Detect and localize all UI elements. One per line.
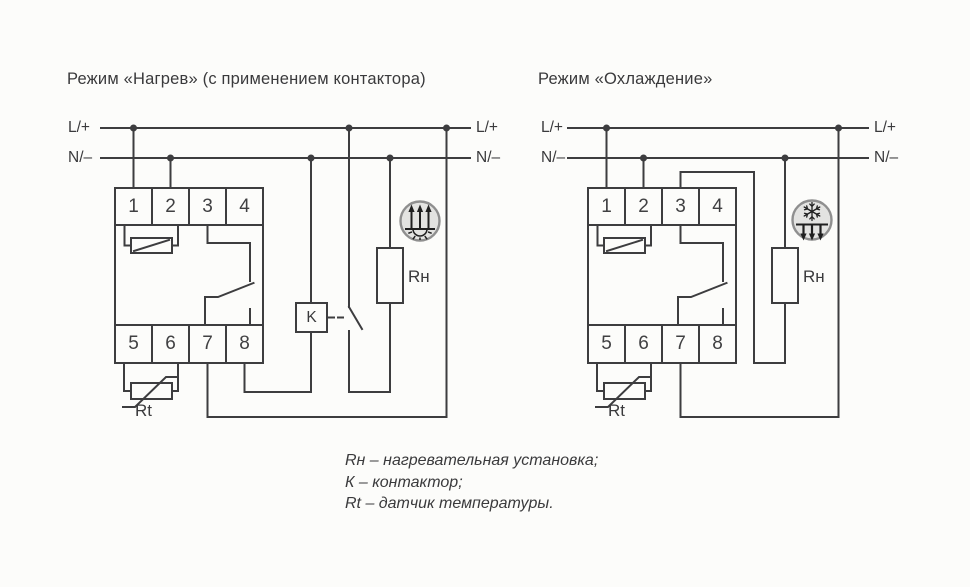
- right-terminal-1: 1: [588, 196, 625, 218]
- right-terminal-2: 2: [625, 196, 662, 218]
- left-terminal-8: 8: [226, 333, 263, 355]
- left-terminal-6: 6: [152, 333, 189, 355]
- left-heater-label: Rн: [408, 267, 430, 287]
- left-sensor-label: Rt: [135, 401, 152, 421]
- left-line-label-right: L/+: [476, 119, 498, 137]
- right-junction-dots: [603, 125, 842, 162]
- contactor-label: K: [296, 309, 327, 327]
- left-terminal-5: 5: [115, 333, 152, 355]
- right-heater-resistor: [772, 248, 798, 303]
- left-line-label-left: L/+: [68, 119, 90, 137]
- right-terminal-3: 3: [662, 196, 699, 218]
- left-terminal-1: 1: [115, 196, 152, 218]
- left-terminal-4: 4: [226, 196, 263, 218]
- left-relay-contact-symbol: [205, 225, 254, 325]
- legend-line-heater: Rн – нагревательная установка;: [345, 450, 598, 472]
- right-neutral-label-right: N/–: [874, 149, 898, 167]
- right-line-label-right: L/+: [874, 119, 896, 137]
- left-terminal-7: 7: [189, 333, 226, 355]
- right-terminal-4: 4: [699, 196, 736, 218]
- left-terminal-2: 2: [152, 196, 189, 218]
- right-terminal-5: 5: [588, 333, 625, 355]
- right-terminal-7: 7: [662, 333, 699, 355]
- left-terminal-3: 3: [189, 196, 226, 218]
- right-relay-coil-symbol: [598, 225, 652, 253]
- cooling-icon: [793, 201, 832, 241]
- right-terminal-8: 8: [699, 333, 736, 355]
- wiring-diagram-canvas: Режим «Нагрев» (с применением контактора…: [0, 0, 970, 587]
- right-neutral-label-left: N/–: [541, 149, 565, 167]
- legend-line-sensor: Rt – датчик температуры.: [345, 493, 598, 515]
- right-diagram-title: Режим «Охлаждение»: [538, 70, 712, 89]
- left-heater-resistor: [377, 248, 403, 303]
- right-heater-label: Rн: [803, 267, 825, 287]
- legend-line-contactor: К – контактор;: [345, 472, 598, 494]
- legend: Rн – нагревательная установка; К – конта…: [345, 450, 598, 515]
- left-neutral-label-right: N/–: [476, 149, 500, 167]
- right-line-label-left: L/+: [541, 119, 563, 137]
- heating-icon: [401, 202, 440, 241]
- right-terminal-6: 6: [625, 333, 662, 355]
- left-neutral-label-left: N/–: [68, 149, 92, 167]
- left-junction-dots: [130, 125, 450, 162]
- left-relay-coil-symbol: [125, 225, 179, 253]
- left-diagram-title: Режим «Нагрев» (с применением контактора…: [67, 70, 426, 89]
- right-relay-contact-symbol: [678, 225, 727, 325]
- right-sensor-label: Rt: [608, 401, 625, 421]
